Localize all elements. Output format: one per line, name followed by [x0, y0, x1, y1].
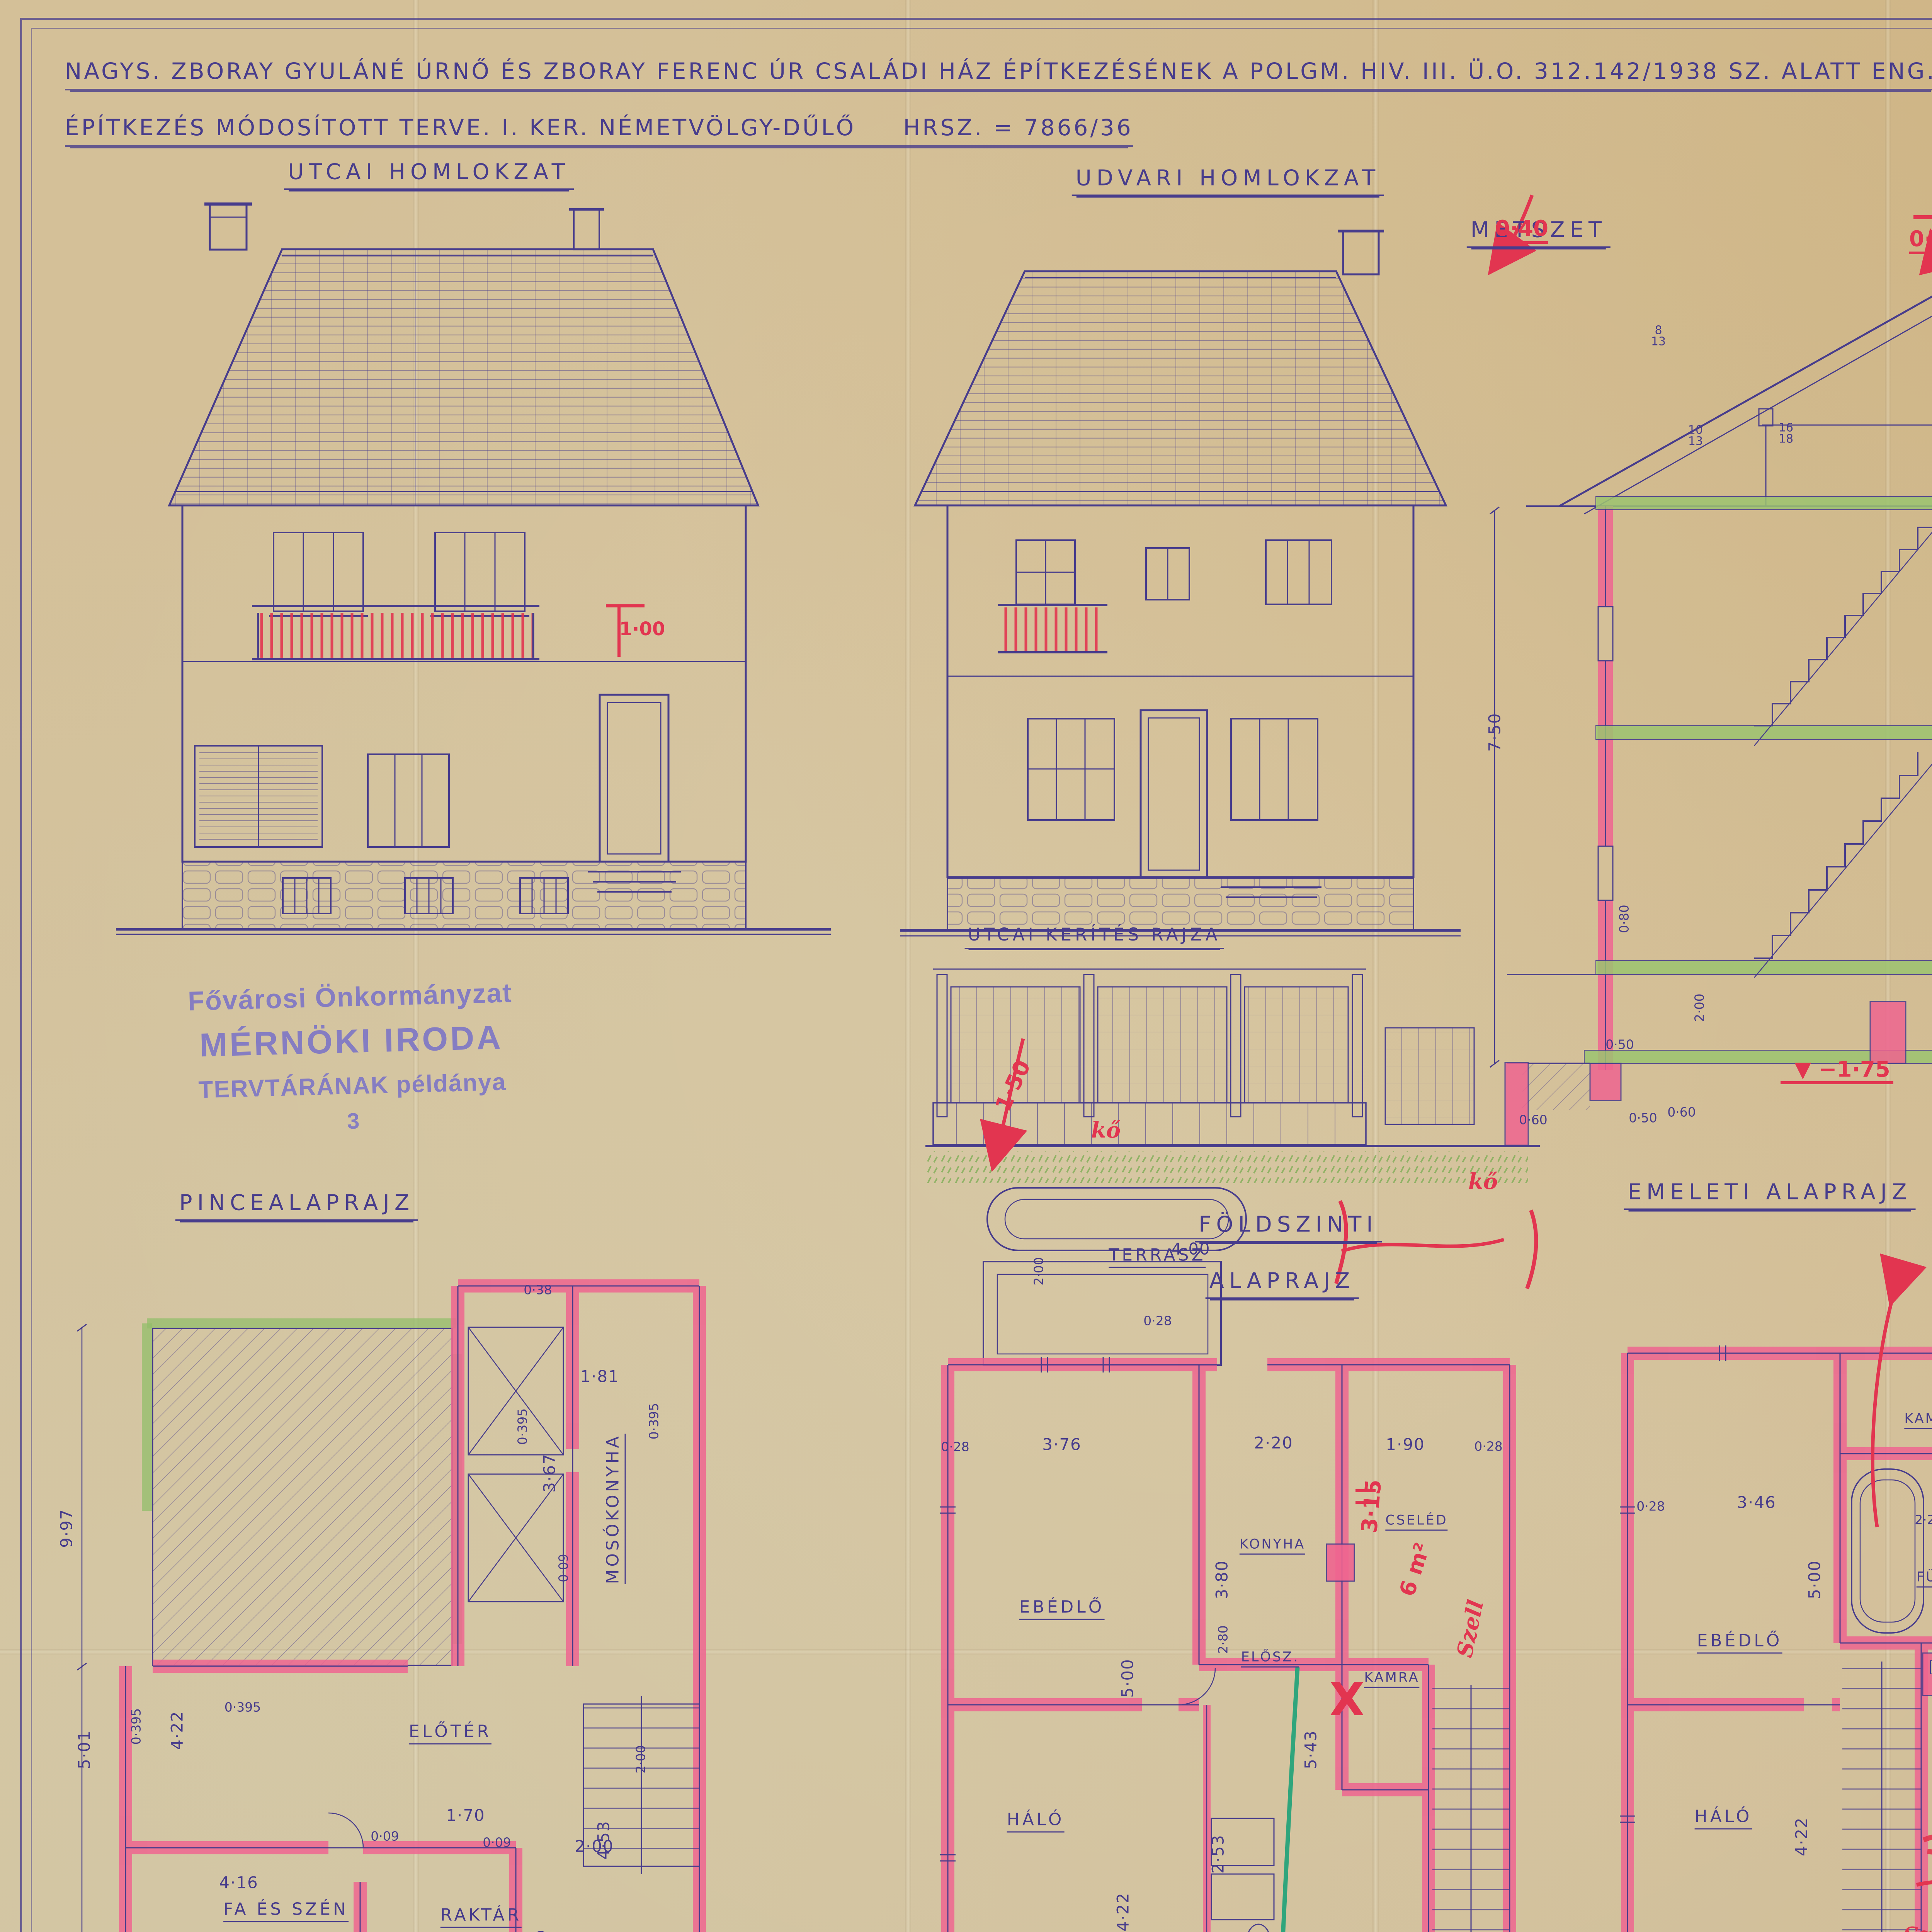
red-note: 0·40 — [1495, 216, 1548, 244]
upper-plan-title: EMELETI ALAPRAJZ — [1624, 1180, 1916, 1210]
red-note: 0·80 — [1909, 226, 1932, 254]
dimension-label: 0·28 — [1474, 1439, 1502, 1454]
courtyard-facade-title: UDVARI HOMLOKZAT — [1072, 166, 1384, 196]
red-note: kő — [1468, 1169, 1498, 1194]
street-facade-drawing — [116, 193, 831, 947]
blueprint-sheet: NAGYS. ZBORAY GYULÁNÉ ÚRNŐ ÉS ZBORAY FER… — [0, 0, 1932, 1932]
dimension-label: 4·22 — [1114, 1892, 1133, 1932]
dimension-label: 2·20 — [1915, 1512, 1932, 1527]
dimension-label: 1·81 — [580, 1367, 619, 1386]
red-note: ▼ −1·75 — [1794, 1057, 1890, 1082]
dimension-label: 0·09 — [371, 1829, 399, 1844]
room-label: CSELÉD — [1385, 1513, 1447, 1531]
dimension-label: 0·09 — [483, 1835, 511, 1850]
dimension-label: 0·395 — [224, 1700, 261, 1715]
room-label: FÜRDŐ — [1917, 1570, 1932, 1588]
room-label: EBÉDLŐ — [1019, 1597, 1105, 1620]
stamp-copy-number: 3 — [90, 1101, 616, 1141]
dimension-label: 0·395 — [129, 1708, 144, 1745]
title-line-1: NAGYS. ZBORAY GYULÁNÉ ÚRNŐ ÉS ZBORAY FER… — [65, 58, 1932, 90]
room-label: KAMRA — [1364, 1670, 1419, 1688]
dimension-label: 0·28 — [941, 1439, 969, 1454]
courtyard-facade-drawing — [900, 216, 1461, 947]
room-label: EBÉDLŐ — [1697, 1631, 1782, 1654]
fence-title: UTCAI KERÍTÉS RAJZA — [965, 924, 1224, 949]
dimension-label: 2·20 — [1254, 1434, 1293, 1452]
dimension-label: 10 13 — [1688, 425, 1703, 447]
red-note: 1·00 — [619, 618, 665, 640]
dimension-label: 0·60 — [1667, 1105, 1696, 1120]
dimension-label: 5·00 — [1118, 1658, 1137, 1698]
dimension-label: 2·80 — [1216, 1625, 1231, 1653]
dimension-label: 2·00 — [633, 1745, 648, 1773]
dimension-label: 3·80 — [1213, 1560, 1231, 1599]
dimension-label: 8 13 — [1651, 325, 1666, 347]
dimension-label: 0·28 — [1442, 1930, 1470, 1932]
room-label: RAKTÁR — [440, 1905, 522, 1928]
dimension-label: 16 18 — [1779, 423, 1793, 445]
dimension-label: 0·28 — [1143, 1313, 1172, 1328]
basement-plan-drawing — [58, 1256, 773, 1932]
ground-plan-title-2: ALAPRAJZ — [1206, 1269, 1359, 1299]
dimension-label: 0·60 — [1519, 1112, 1547, 1128]
red-note: 3·15 — [1357, 1478, 1387, 1534]
dimension-label: 1·90 — [1386, 1435, 1425, 1454]
basement-plan-title: PINCEALAPRAJZ — [175, 1190, 418, 1221]
dimension-label: 3·67 — [540, 1453, 559, 1493]
dimension-label: 0·395 — [515, 1408, 530, 1445]
dimension-label: 1·70 — [446, 1806, 485, 1825]
dimension-label: 2·00 — [575, 1837, 614, 1856]
dimension-label: 3·76 — [1042, 1435, 1082, 1454]
dimension-label: 2·53 — [1209, 1834, 1228, 1874]
stamp-line: MÉRNÖKI IRODA — [88, 1015, 614, 1068]
dimension-label: 2·00 — [1692, 993, 1707, 1022]
dimension-label: 0·38 — [524, 1282, 552, 1298]
dimension-label: 9·97 — [57, 1509, 76, 1548]
dimension-label: 5·43 — [1301, 1730, 1320, 1769]
ground-plan-title-1: FÖLDSZINTI — [1195, 1212, 1382, 1243]
room-label: KONYHA — [1240, 1537, 1305, 1555]
room-label: HÁLÓ — [1695, 1807, 1752, 1830]
dimension-label: 3·46 — [1737, 1493, 1776, 1512]
dimension-label: 0·50 — [1629, 1111, 1657, 1126]
dimension-label: 7·50 — [1485, 713, 1504, 752]
room-label: ELŐSZ. — [1241, 1650, 1299, 1668]
upper-plan-drawing — [1604, 1236, 1932, 1932]
red-note: X — [1330, 1673, 1365, 1726]
dimension-label: 4·16 — [219, 1873, 259, 1892]
room-label: FA ÉS SZÉN — [223, 1900, 349, 1922]
street-facade-title: UTCAI HOMLOKZAT — [284, 160, 574, 190]
dimension-label: 5·00 — [1805, 1560, 1824, 1599]
room-label: ELŐTÉR — [409, 1722, 492, 1745]
dimension-label: 0·395 — [646, 1403, 662, 1439]
dimension-label: 5·01 — [75, 1730, 94, 1769]
stamp-line: Fővárosi Önkormányzat — [87, 975, 613, 1019]
dimension-label: 0·28 — [1636, 1499, 1665, 1514]
dimension-label: 4·22 — [1792, 1817, 1811, 1856]
room-label: KAMRA — [1904, 1411, 1932, 1429]
room-label: HÁLÓ — [1007, 1810, 1065, 1833]
dimension-label: 2·00 — [1031, 1257, 1046, 1285]
dimension-label: 0·80 — [1617, 905, 1632, 933]
dimension-label: 0·80 — [534, 1930, 549, 1932]
title-line-2: ÉPÍTKEZÉS MÓDOSÍTOTT TERVE. I. KER. NÉME… — [65, 114, 1133, 147]
red-note: Szoba — [1903, 1922, 1932, 1932]
archive-copy-stamp: Fővárosi Önkormányzat MÉRNÖKI IRODA TERV… — [87, 975, 616, 1141]
stamp-line: TERVTÁRÁNAK példánya — [89, 1065, 615, 1107]
dimension-label: 4·22 — [168, 1711, 187, 1750]
dimension-label: 4·00 — [1171, 1240, 1211, 1259]
room-label: MOSÓKONYHA — [603, 1434, 626, 1584]
dimension-label: 0·50 — [1605, 1037, 1634, 1052]
dimension-label: 0·09 — [556, 1554, 571, 1582]
red-note: kő — [1091, 1117, 1121, 1143]
